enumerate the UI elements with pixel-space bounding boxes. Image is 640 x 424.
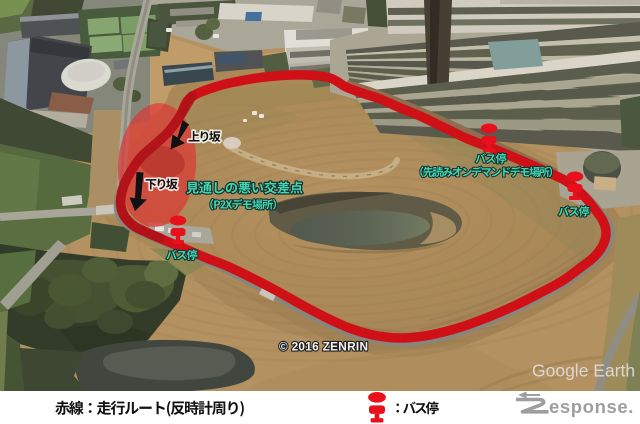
svg-text:Google Earth: Google Earth [532,361,635,381]
svg-text:© 2016 ZENRIN: © 2016 ZENRIN [279,340,368,354]
svg-text:esponse.: esponse. [549,396,634,417]
